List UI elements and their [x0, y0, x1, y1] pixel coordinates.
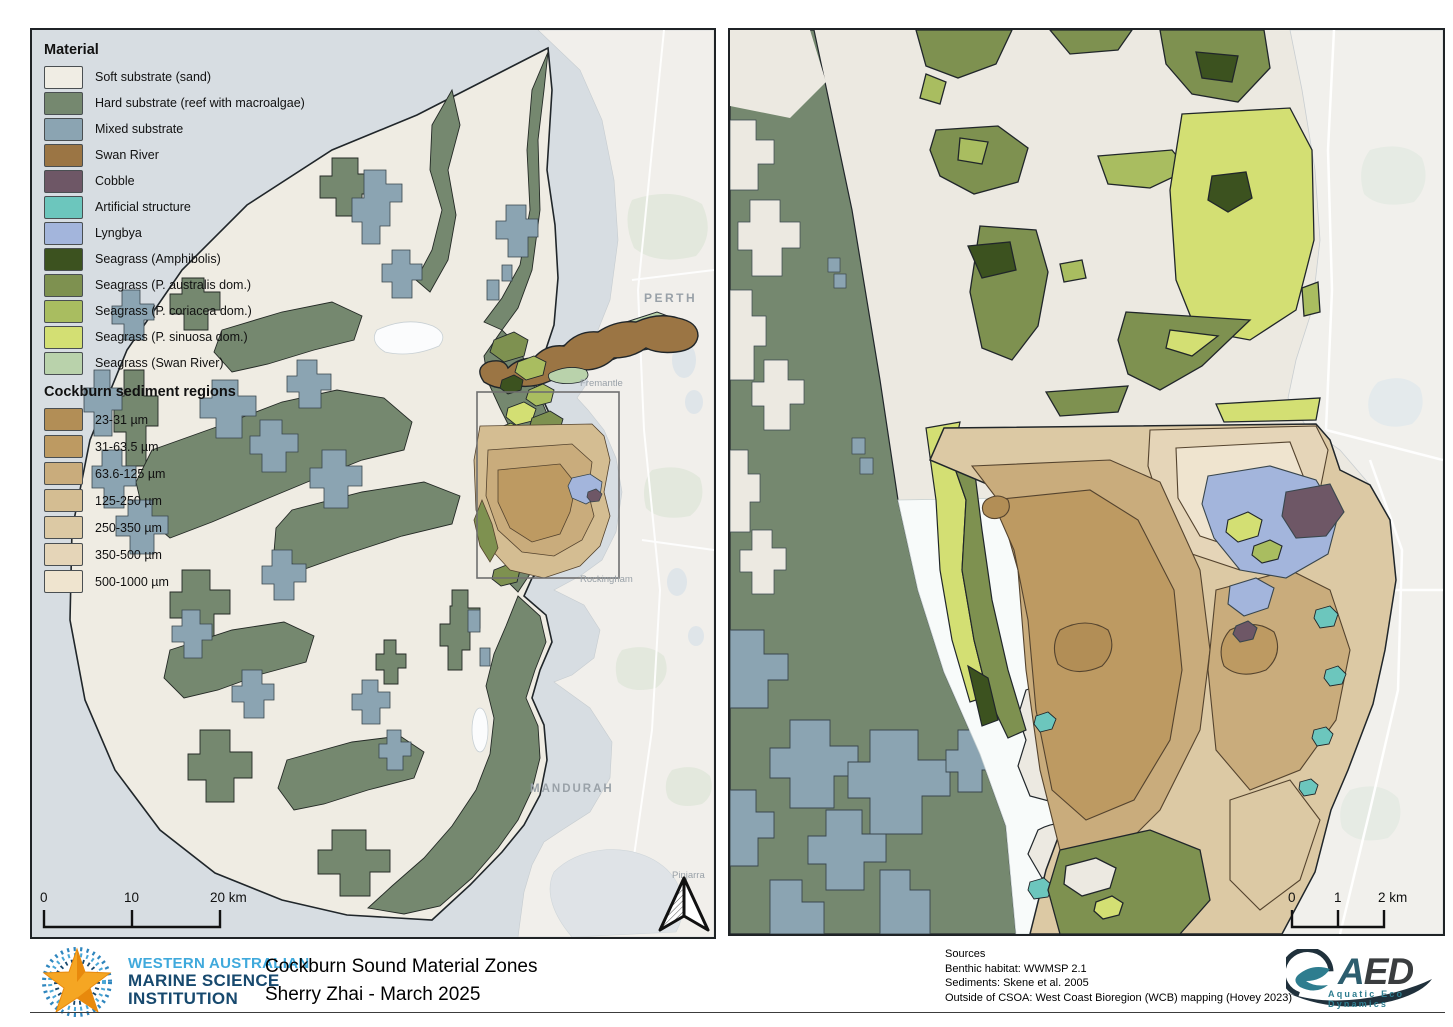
- legend-item-label: Lyngbya: [95, 226, 142, 240]
- legend-item-label: Cobble: [95, 174, 135, 188]
- aed-logo: AED Aquatic Eco Dynamics: [1286, 949, 1438, 1007]
- legend-item: Mixed substrate: [44, 116, 282, 142]
- sediment-mini-region: [474, 424, 610, 578]
- sources-line3: Outside of CSOA: West Coast Bioregion (W…: [945, 991, 1292, 1006]
- legend-swatch: [44, 543, 83, 566]
- legend-swatch: [44, 408, 83, 431]
- legend-item: Seagrass (Amphibolis): [44, 246, 282, 272]
- detail-map: 0 1 2 km: [730, 30, 1443, 934]
- legend: Material Soft substrate (sand) Hard subs…: [44, 38, 282, 595]
- legend-swatch: [44, 196, 83, 219]
- map-title: Cockburn Sound Material Zones Sherry Zha…: [265, 953, 537, 1008]
- legend-item: 250-350 µm: [44, 514, 282, 541]
- legend-item-label: 350-500 µm: [95, 548, 162, 562]
- legend-item-label: 23-31 µm: [95, 413, 148, 427]
- legend-item-label: Seagrass (P. australis dom.): [95, 278, 251, 292]
- legend-item-label: 125-250 µm: [95, 494, 162, 508]
- legend-item: 31-63.5 µm: [44, 433, 282, 460]
- legend-item: Artificial structure: [44, 194, 282, 220]
- legend-item: Seagrass (P. sinuosa dom.): [44, 324, 282, 350]
- legend-swatch: [44, 144, 83, 167]
- legend-item: Seagrass (P. australis dom.): [44, 272, 282, 298]
- svg-text:2 km: 2 km: [1378, 890, 1407, 905]
- legend-item: 23-31 µm: [44, 406, 282, 433]
- legend-item: Cobble: [44, 168, 282, 194]
- legend-material-list: Soft substrate (sand) Hard substrate (re…: [44, 64, 282, 376]
- label-mandurah: MANDURAH: [530, 783, 614, 795]
- legend-item-label: Soft substrate (sand): [95, 70, 211, 84]
- sources-heading: Sources: [945, 947, 1292, 962]
- legend-swatch: [44, 462, 83, 485]
- legend-item: Lyngbya: [44, 220, 282, 246]
- legend-item-label: Swan River: [95, 148, 159, 162]
- label-fremantle: Fremantle: [580, 378, 623, 389]
- legend-item-label: 31-63.5 µm: [95, 440, 158, 454]
- legend-sediment-list: 23-31 µm 31-63.5 µm 63.6-125 µm: [44, 406, 282, 595]
- legend-item-label: 500-1000 µm: [95, 575, 169, 589]
- legend-item: Swan River: [44, 142, 282, 168]
- figure-canvas: PERTH Fremantle Rockingham MANDURAH Pinj…: [0, 0, 1453, 1027]
- aed-tagline: Aquatic Eco Dynamics: [1328, 989, 1438, 1009]
- legend-item-label: Hard substrate (reef with macroalgae): [95, 96, 305, 110]
- legend-swatch: [44, 274, 83, 297]
- svg-text:10: 10: [124, 890, 139, 905]
- legend-item-label: Seagrass (P. sinuosa dom.): [95, 330, 248, 344]
- sources-line1: Benthic habitat: WWMSP 2.1: [945, 962, 1292, 977]
- legend-item-label: 63.6-125 µm: [95, 467, 165, 481]
- legend-swatch: [44, 326, 83, 349]
- legend-item: 500-1000 µm: [44, 568, 282, 595]
- footer: WESTERN AUSTRALIAN MARINE SCIENCE INSTIT…: [0, 941, 1453, 1027]
- legend-item-label: Mixed substrate: [95, 122, 183, 136]
- legend-item: Seagrass (Swan River): [44, 350, 282, 376]
- label-pinjarra: Pinjarra: [672, 870, 705, 881]
- legend-swatch: [44, 435, 83, 458]
- legend-swatch: [44, 222, 83, 245]
- overview-map-panel: PERTH Fremantle Rockingham MANDURAH Pinj…: [30, 28, 716, 939]
- map-title-line1: Cockburn Sound Material Zones: [265, 953, 537, 981]
- label-perth: PERTH: [644, 291, 697, 305]
- sources-block: Sources Benthic habitat: WWMSP 2.1 Sedim…: [945, 947, 1292, 1005]
- legend-item: Seagrass (P. coriacea dom.): [44, 298, 282, 324]
- legend-swatch: [44, 352, 83, 375]
- legend-item-label: 250-350 µm: [95, 521, 162, 535]
- legend-swatch: [44, 300, 83, 323]
- legend-item: 125-250 µm: [44, 487, 282, 514]
- svg-text:1: 1: [1334, 890, 1342, 905]
- legend-swatch: [44, 66, 83, 89]
- svg-text:0: 0: [1288, 890, 1296, 905]
- wamsi-star-icon: [38, 943, 116, 1021]
- legend-swatch: [44, 92, 83, 115]
- legend-item-label: Seagrass (Amphibolis): [95, 252, 221, 266]
- legend-item: Hard substrate (reef with macroalgae): [44, 90, 282, 116]
- svg-text:0: 0: [40, 890, 48, 905]
- legend-item-label: Seagrass (Swan River): [95, 356, 224, 370]
- legend-swatch: [44, 570, 83, 593]
- legend-swatch: [44, 489, 83, 512]
- sources-line2: Sediments: Skene et al. 2005: [945, 976, 1292, 991]
- legend-item-label: Artificial structure: [95, 200, 191, 214]
- legend-swatch: [44, 170, 83, 193]
- label-rockingham: Rockingham: [580, 574, 633, 585]
- legend-sediment-heading: Cockburn sediment regions: [44, 384, 282, 400]
- legend-item: 63.6-125 µm: [44, 460, 282, 487]
- footer-rule: [30, 1012, 1445, 1013]
- legend-material-heading: Material: [44, 42, 282, 58]
- aed-acronym: AED: [1338, 951, 1413, 993]
- svg-text:20 km: 20 km: [210, 890, 247, 905]
- legend-swatch: [44, 118, 83, 141]
- detail-map-panel: 0 1 2 km: [728, 28, 1445, 936]
- legend-item-label: Seagrass (P. coriacea dom.): [95, 304, 252, 318]
- map-title-line2: Sherry Zhai - March 2025: [265, 981, 537, 1009]
- legend-swatch: [44, 248, 83, 271]
- legend-swatch: [44, 516, 83, 539]
- legend-item: 350-500 µm: [44, 541, 282, 568]
- legend-item: Soft substrate (sand): [44, 64, 282, 90]
